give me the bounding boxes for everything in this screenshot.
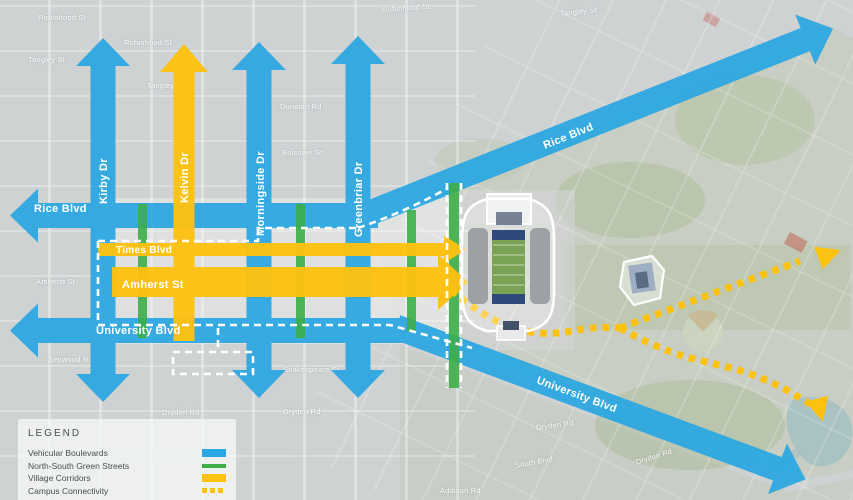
legend-swatch-vehicular-boulevards	[202, 449, 226, 457]
stadium-endzone-south	[492, 294, 525, 304]
legend-item-label: Campus Connectivity	[28, 486, 108, 496]
stadium-field	[492, 230, 525, 304]
stadium-endzone-north	[492, 230, 525, 240]
amherst-st-label: Amherst St	[122, 279, 184, 291]
legend-item-label: North-South Green Streets	[28, 461, 129, 471]
stadium-south-building-roof	[503, 321, 519, 330]
legend-panel: LEGEND Vehicular BoulevardsNorth-South G…	[18, 419, 236, 500]
legend-swatch-north-south-green-streets	[202, 464, 226, 468]
legend-swatch-village-corridors	[202, 474, 226, 482]
legend-swatch-campus-connectivity	[202, 488, 226, 494]
legend-item-label: Village Corridors	[28, 473, 91, 483]
stadium	[462, 194, 554, 340]
times-blvd-label: Times Blvd	[116, 245, 172, 256]
legend-item-campus-connectivity: Campus Connectivity	[28, 486, 226, 496]
university-blvd-west-label: University Blvd	[96, 325, 181, 337]
legend-item-label: Vehicular Boulevards	[28, 448, 108, 458]
stadium-stands-east	[530, 228, 550, 304]
campus-connectivity-path-southeast	[620, 328, 812, 405]
kelvin-dr-label: Kelvin Dr	[179, 152, 191, 203]
legend-item-vehicular-boulevards: Vehicular Boulevards	[28, 448, 226, 458]
stadium-stands-west	[468, 228, 488, 304]
legend-item-north-south-green-streets: North-South Green Streets	[28, 461, 226, 471]
greenbriar-dr-label: Greenbriar Dr	[353, 161, 365, 237]
morningside-dr-label: Morningside Dr	[255, 151, 267, 236]
campus-building-roof-detail	[635, 271, 649, 289]
legend-title: LEGEND	[28, 428, 226, 439]
campus-connectivity-arrowhead	[814, 247, 841, 270]
map-canvas: Robinhood StRobinhood StRobinhood StTang…	[0, 0, 853, 500]
kirby-dr-label: Kirby Dr	[98, 158, 110, 204]
campus-building	[620, 256, 664, 305]
legend-item-village-corridors: Village Corridors	[28, 473, 226, 483]
rice-blvd-west-label: Rice Blvd	[34, 203, 87, 215]
legend-rows: Vehicular BoulevardsNorth-South Green St…	[28, 448, 226, 496]
